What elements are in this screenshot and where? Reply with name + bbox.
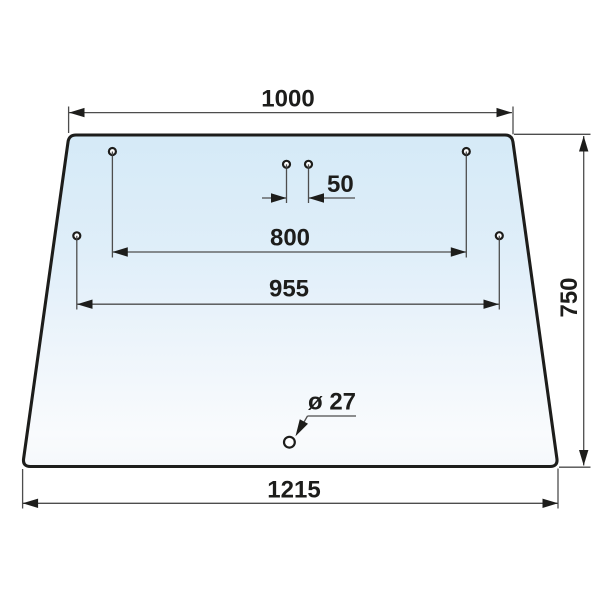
- svg-text:ø 27: ø 27: [308, 389, 356, 416]
- svg-text:800: 800: [270, 225, 310, 252]
- svg-text:1000: 1000: [261, 86, 314, 113]
- svg-text:955: 955: [269, 276, 309, 303]
- svg-text:750: 750: [556, 277, 583, 317]
- svg-text:50: 50: [327, 171, 354, 198]
- svg-text:1215: 1215: [267, 477, 320, 504]
